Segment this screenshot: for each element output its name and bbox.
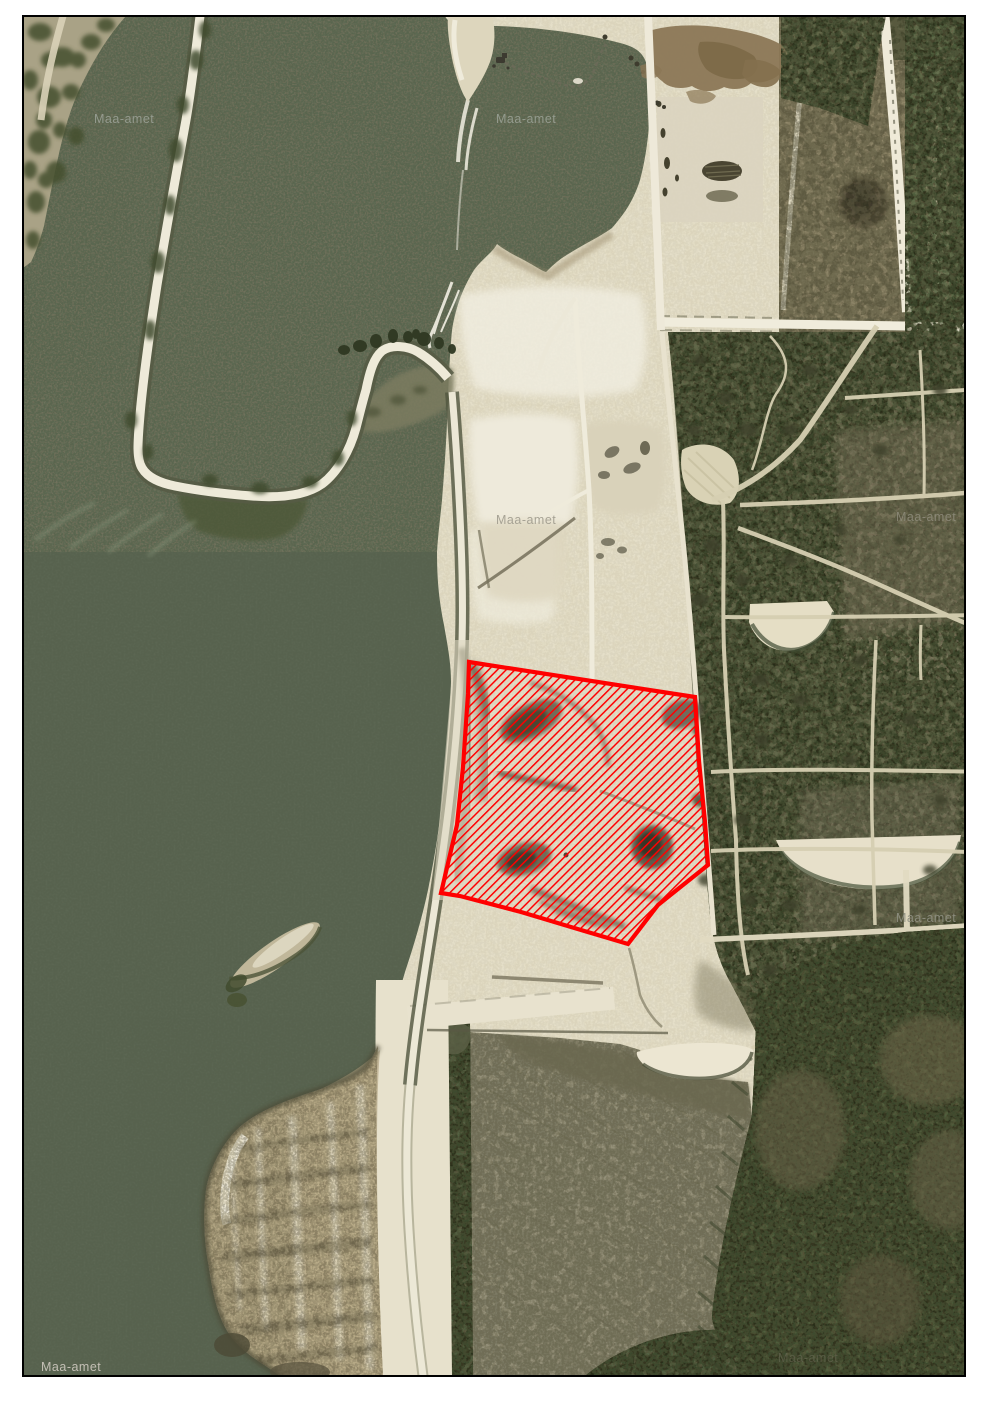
svg-text:Maa-amet: Maa-amet [896, 911, 956, 925]
svg-text:Maa-amet: Maa-amet [496, 112, 556, 126]
svg-text:Maa-amet: Maa-amet [496, 513, 556, 527]
svg-text:Maa-amet: Maa-amet [778, 1351, 838, 1365]
svg-text:Maa-amet: Maa-amet [41, 1360, 101, 1374]
svg-text:Maa-amet: Maa-amet [896, 510, 956, 524]
svg-text:Maa-amet: Maa-amet [94, 112, 154, 126]
